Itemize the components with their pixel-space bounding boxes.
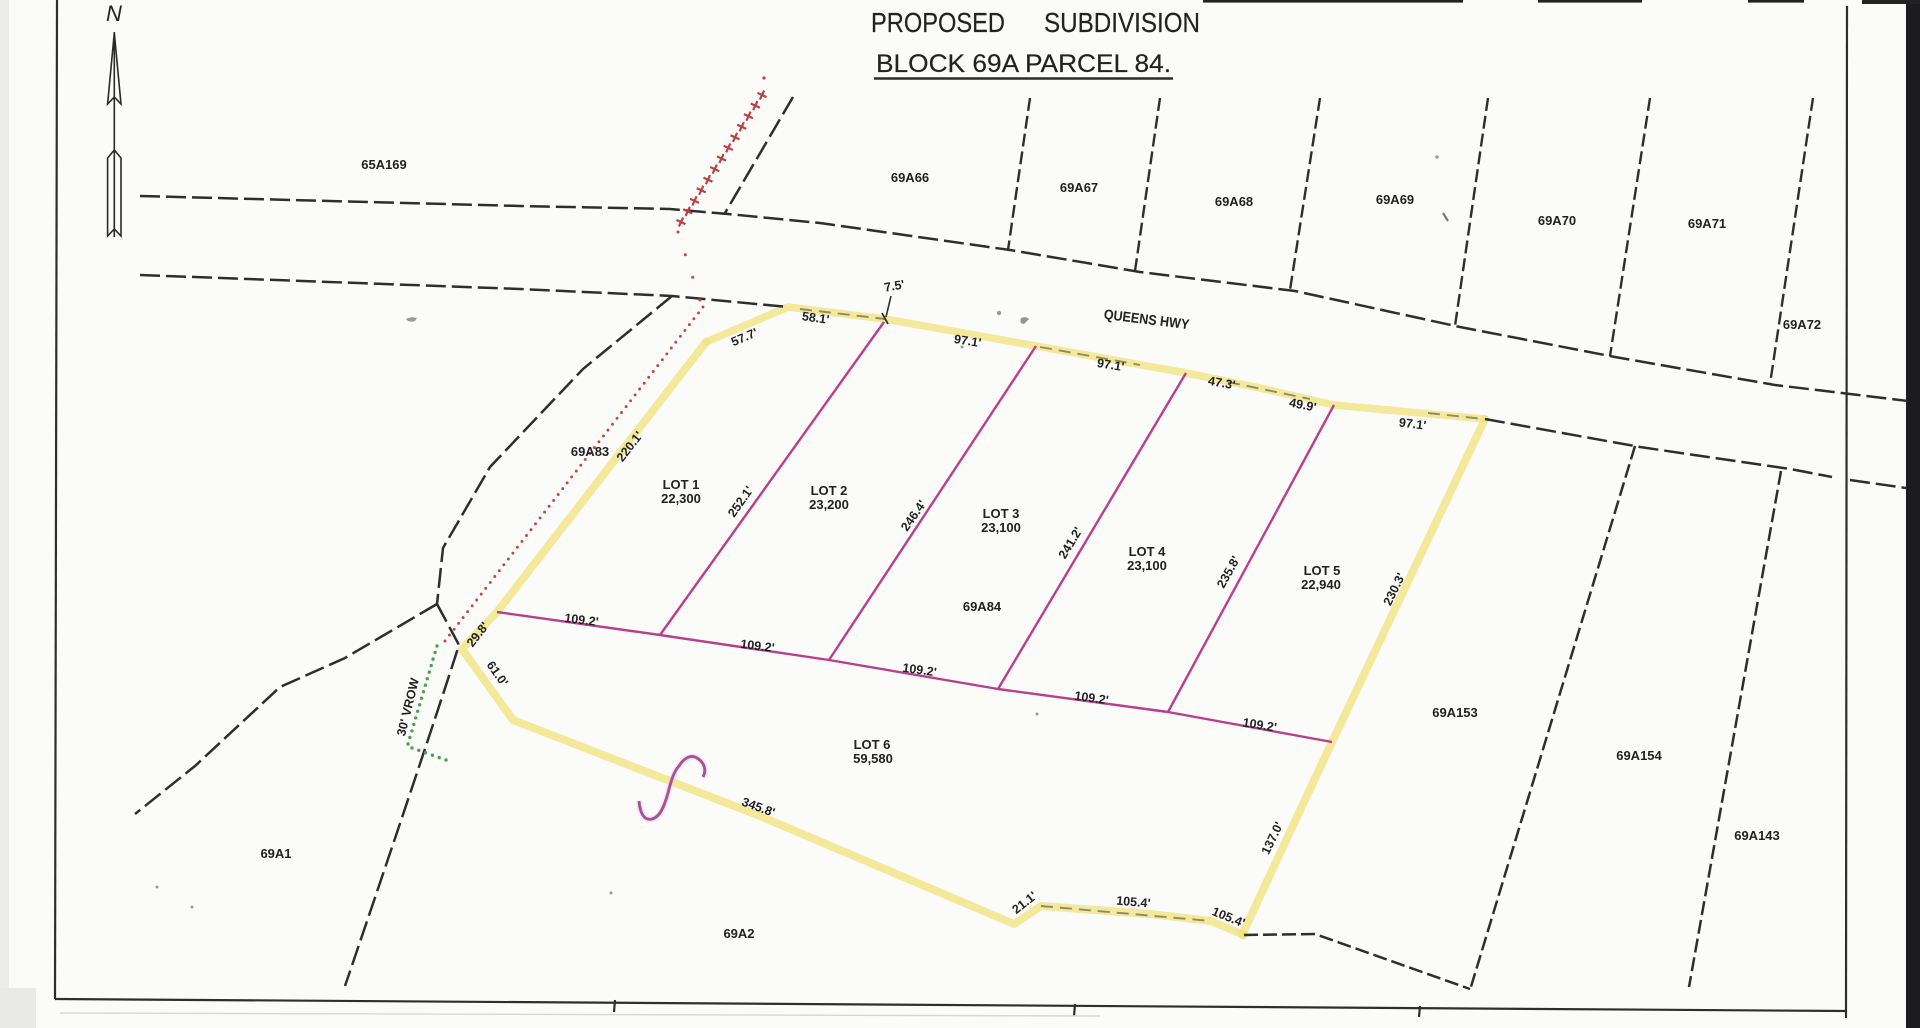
svg-text:SUBDIVISION: SUBDIVISION: [1044, 7, 1200, 38]
svg-text:69A66: 69A66: [891, 170, 929, 185]
svg-text:69A70: 69A70: [1538, 213, 1576, 228]
svg-text:LOT 5: LOT 5: [1304, 563, 1341, 578]
svg-text:69A68: 69A68: [1215, 194, 1253, 209]
svg-text:PROPOSED: PROPOSED: [871, 7, 1005, 38]
svg-text:69A2: 69A2: [723, 926, 754, 941]
svg-text:105.4': 105.4': [1116, 894, 1151, 911]
svg-text:69A83: 69A83: [571, 444, 609, 459]
svg-text:69A1: 69A1: [260, 846, 291, 861]
svg-text:LOT 4: LOT 4: [1129, 544, 1167, 559]
svg-text:BLOCK 69A PARCEL 84.: BLOCK 69A PARCEL 84.: [876, 50, 1171, 78]
svg-text:65A169: 65A169: [361, 157, 407, 172]
svg-text:23,100: 23,100: [1127, 558, 1167, 573]
svg-text:69A72: 69A72: [1783, 317, 1821, 332]
svg-text:23,100: 23,100: [981, 520, 1021, 535]
svg-text:59,580: 59,580: [853, 751, 893, 766]
svg-text:LOT 2: LOT 2: [811, 483, 848, 498]
svg-text:69A67: 69A67: [1060, 180, 1098, 195]
svg-text:22,300: 22,300: [661, 491, 701, 506]
svg-text:LOT 1: LOT 1: [663, 477, 700, 492]
svg-text:69A84: 69A84: [963, 599, 1002, 614]
svg-text:69A154: 69A154: [1616, 748, 1662, 763]
svg-text:69A69: 69A69: [1376, 192, 1414, 207]
svg-text:LOT 3: LOT 3: [983, 506, 1020, 521]
svg-text:N: N: [106, 1, 122, 26]
svg-text:69A143: 69A143: [1734, 828, 1780, 843]
svg-text:22,940: 22,940: [1301, 577, 1341, 592]
svg-text:69A71: 69A71: [1688, 216, 1726, 231]
svg-text:LOT 6: LOT 6: [854, 737, 891, 752]
svg-text:69A153: 69A153: [1432, 705, 1478, 720]
svg-text:23,200: 23,200: [809, 497, 849, 512]
